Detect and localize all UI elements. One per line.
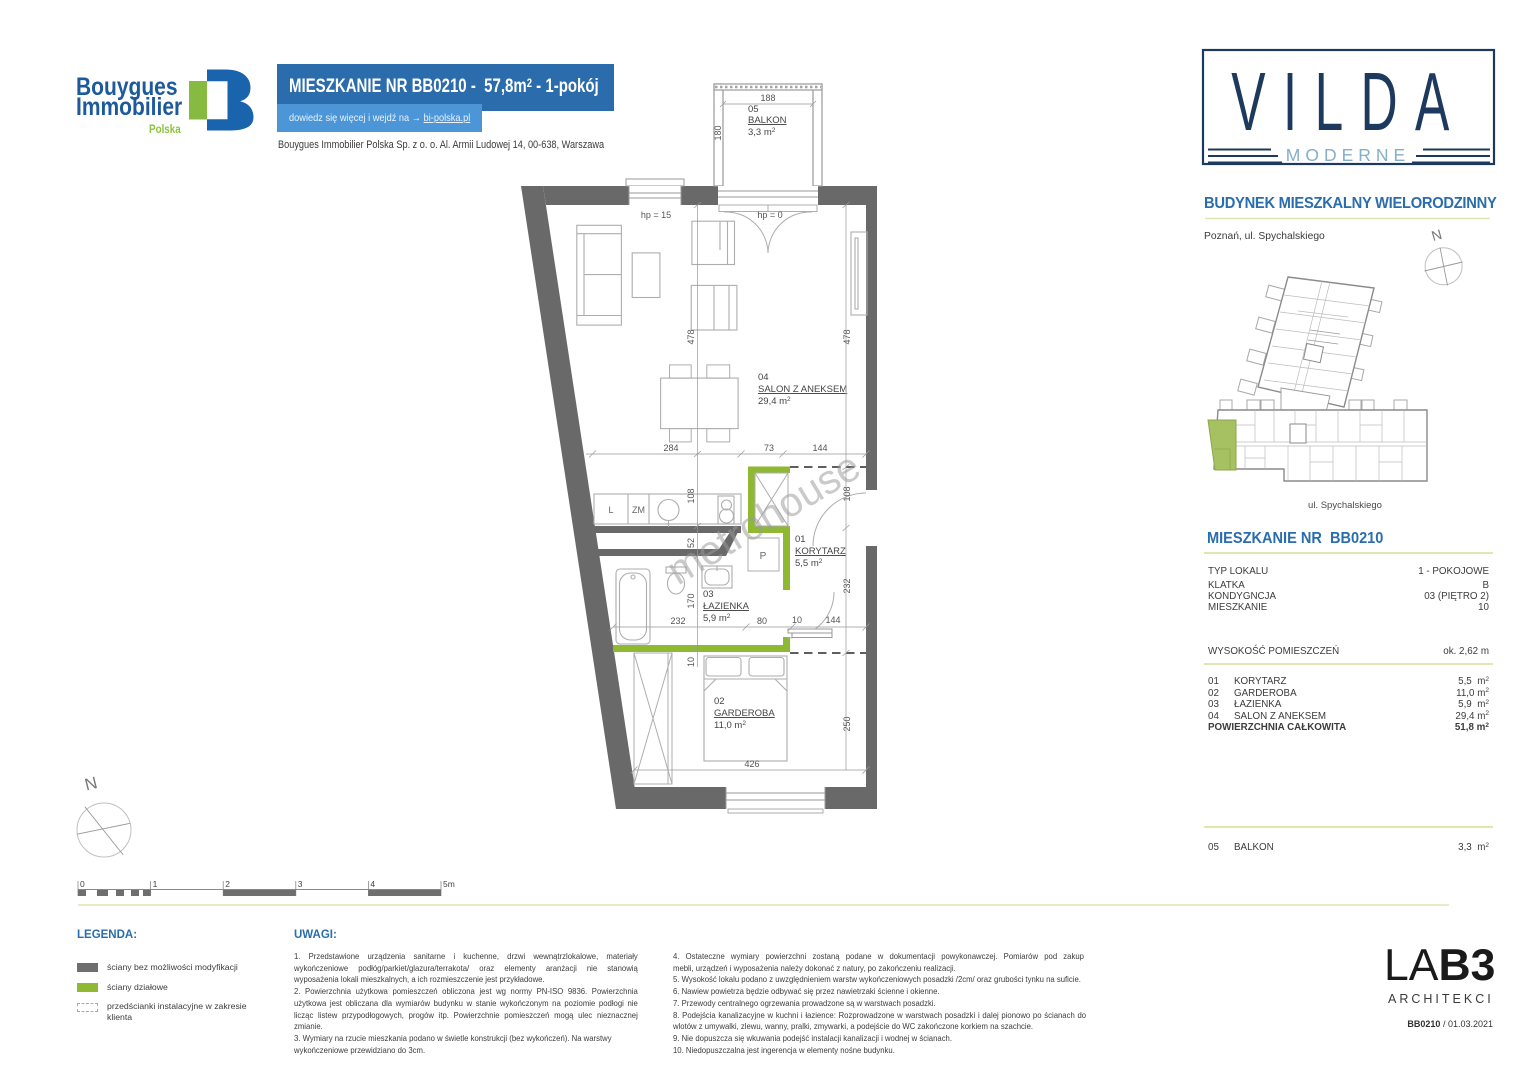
svg-text:188: 188 [760,93,775,103]
svg-text:108: 108 [686,488,696,503]
svg-text:03: 03 [703,589,714,600]
svg-text:GARDEROBA: GARDEROBA [714,708,775,719]
svg-text:ŁAZIENKA: ŁAZIENKA [703,601,750,612]
svg-text:ul. Spychalskiego: ul. Spychalskiego [1308,500,1382,511]
svg-text:232: 232 [842,578,852,593]
svg-text:284: 284 [663,443,678,453]
svg-text:KORYTARZ: KORYTARZ [795,546,846,557]
svg-text:10: 10 [686,657,696,667]
svg-text:MODERNE: MODERNE [1286,145,1410,165]
svg-text:0: 0 [80,879,85,889]
svg-text:144: 144 [812,443,827,453]
svg-text:P: P [760,551,767,562]
svg-text:hp = 0: hp = 0 [757,210,782,220]
svg-text:3: 3 [298,879,303,889]
svg-text:BALKON: BALKON [748,115,787,126]
svg-text:L: L [608,505,613,515]
svg-text:10: 10 [792,615,802,625]
svg-text:80: 80 [757,616,767,626]
svg-text:11,0 m2: 11,0 m2 [714,720,746,731]
svg-text:426: 426 [744,759,759,769]
svg-text:5m: 5m [443,879,455,889]
svg-text:N: N [83,773,100,794]
svg-text:5,5 m2: 5,5 m2 [795,558,823,569]
svg-text:01: 01 [795,534,806,545]
svg-text:05: 05 [748,104,759,115]
svg-text:250: 250 [842,716,852,731]
svg-text:478: 478 [686,329,696,344]
svg-text:1: 1 [153,879,158,889]
svg-text:180: 180 [713,125,723,140]
svg-text:478: 478 [842,329,852,344]
svg-text:5,9 m2: 5,9 m2 [703,613,731,624]
svg-text:SALON Z ANEKSEM: SALON Z ANEKSEM [758,384,847,395]
svg-text:232: 232 [670,616,685,626]
svg-text:170: 170 [686,593,696,608]
svg-text:04: 04 [758,372,769,383]
svg-text:ZM: ZM [632,505,645,515]
svg-text:hp = 15: hp = 15 [641,210,671,220]
svg-text:02: 02 [714,696,725,707]
svg-text:73: 73 [764,443,774,453]
svg-text:VILDA: VILDA [1231,54,1467,148]
svg-text:29,4 m2: 29,4 m2 [758,396,791,407]
svg-text:4: 4 [370,879,375,889]
svg-text:3,3 m2: 3,3 m2 [748,127,776,138]
svg-text:2: 2 [225,879,230,889]
svg-text:144: 144 [825,615,840,625]
svg-text:N: N [1430,226,1444,244]
